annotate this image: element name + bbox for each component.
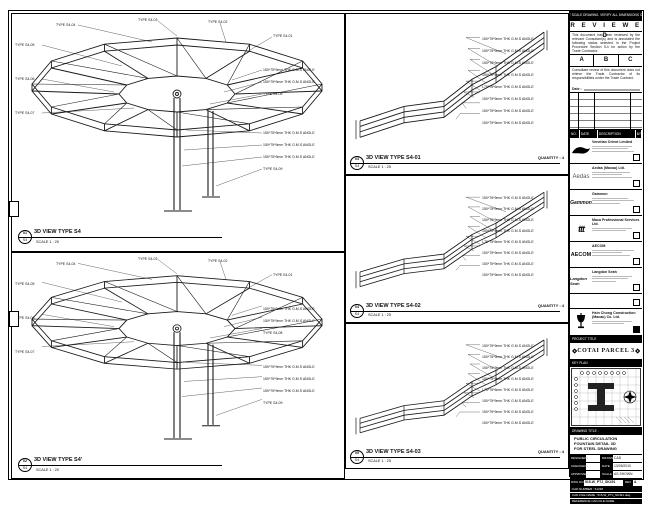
consultant-name: AECOM (592, 244, 642, 248)
member-label: L75*75*6mm THK G.M.S ANGLE (482, 85, 534, 89)
panel-3d-view-type-s4: TYPE S4-05 TYPE S4-04 TYPE S4-03 TYPE S4… (11, 13, 345, 252)
cad-ref-row: REFERENCE CAD FILE NAME (570, 499, 642, 505)
consultant-name: Gammon (592, 192, 642, 196)
panel-3d-view-type-s4-02: 150*75*9mm THK G.M.S ANGLE 150*75*9mm TH… (345, 175, 569, 323)
detail-callout: 01 S4 (18, 230, 32, 244)
view-scale: SCALE 1 : 20 (36, 240, 59, 244)
date-label: Date : (572, 87, 582, 91)
project-name: COTAI PARCEL 3 (577, 348, 635, 354)
field-label: CHECKED (570, 463, 586, 470)
member-label: TYPE S4-09 (263, 167, 282, 171)
address-line (592, 323, 624, 324)
contractor-goblet-logo-icon (570, 309, 592, 335)
member-label: TYPE S4-01 (273, 34, 292, 38)
consultant-name: Maca Professional Services Ltd. (592, 218, 642, 226)
title-underline (364, 457, 560, 458)
member-label: 150*75*9mm THK G.M.S ANGLE (482, 49, 534, 53)
field-label: DESIGNED (570, 455, 586, 462)
address-line (592, 250, 634, 251)
reviewed-title: R E V I E W E D (570, 21, 642, 32)
address-line (592, 198, 628, 199)
address-line (592, 172, 630, 173)
address-line (592, 255, 630, 256)
grid-line (630, 93, 631, 129)
member-label: 150*75*9mm THK G.M.S ANGLE (482, 196, 534, 200)
member-label: 150*75*9mm THK G.M.S ANGLE (263, 377, 315, 381)
member-label: TYPE S4-07 (15, 350, 34, 354)
member-label: TYPE S4-04 (56, 23, 75, 27)
member-label: 150*75*9mm THK G.M.S ANGLE (482, 109, 534, 113)
address-line (592, 228, 632, 229)
address-line (592, 278, 628, 279)
contractor-row: Hsin Chong Construction (Macau) Co. Ltd. (570, 309, 642, 336)
quantity-label: QUANTITY : 4 (538, 303, 564, 308)
member-label: L75*75*6mm THK G.M.S ANGLE (482, 388, 534, 392)
view-title: 3D VIEW TYPE S4-02 (366, 303, 421, 309)
panel-3d-view-type-s4-01: 150*75*9mm THK G.M.S ANGLE 150*75*9mm TH… (345, 13, 569, 175)
revision-table-header: NO. DATE DESCRIPTION BY (570, 130, 642, 138)
quantity-label: QUANTITY : 4 (538, 449, 564, 454)
view-title: 3D VIEW TYPE S4-03 (366, 449, 421, 455)
drawing-title-bar: DRAWING TITLE : (570, 428, 642, 435)
dwg-no-label: DWG NO : (570, 479, 584, 486)
contractor-name: Hsin Chong Construction (Macau) Co. Ltd. (592, 311, 642, 319)
member-label: TYPE S4-03 (138, 257, 157, 261)
reviewed-stamp: R E V I E W E D This document has been r… (570, 21, 642, 93)
view-scale: SCALE 1 : 25 (368, 459, 391, 463)
umbrella-structure-drawing (12, 253, 344, 456)
member-label: 150*75*9mm THK G.M.S ANGLE (482, 121, 534, 125)
address-line (592, 177, 632, 178)
drawing-title-text: PUBLIC CIRCULATION FOUNTAIN DETAIL 3D FO… (570, 435, 642, 455)
date-fill-line[interactable] (584, 85, 640, 91)
project-name-box: COTAI PARCEL 3 (570, 343, 642, 360)
consultant-name: Langdon Seah (592, 270, 642, 274)
consultant-row-empty (570, 294, 642, 309)
field-value: CAD (613, 455, 642, 462)
consultant-checkbox[interactable] (633, 154, 640, 161)
title-underline (32, 237, 222, 238)
address-line (592, 321, 632, 322)
title-underline (32, 465, 222, 466)
address-line (592, 230, 626, 231)
aecom-logo-icon: AECOM (570, 242, 592, 267)
member-label: 150*75*9mm THK G.M.S ANGLE (263, 131, 315, 135)
stamp-paragraph-1: This document has been reviewed by the r… (570, 32, 642, 54)
grid-line (594, 93, 595, 129)
member-label: 150*75*9mm THK G.M.S ANGLE (482, 410, 534, 414)
member-label: 150*75*9mm THK G.M.S ANGLE (482, 377, 534, 381)
detail-callout: 05 S4 (350, 450, 364, 464)
consultant-checkbox[interactable] (633, 284, 640, 291)
field-value: - (586, 463, 601, 470)
callout-sheet: S4 (355, 458, 359, 462)
key-plan-map (570, 367, 642, 428)
grid-line (578, 93, 579, 129)
consultant-name: Aedas (Macau) Ltd. (592, 166, 642, 170)
field-value: - (586, 471, 601, 478)
drawing-sheet: TYPE S4-05 TYPE S4-04 TYPE S4-03 TYPE S4… (8, 10, 644, 480)
member-label: 150*75*9mm THK G.M.S ANGLE (482, 251, 534, 255)
title-underline (364, 311, 560, 312)
dwg-no-value: 515-W_PTJ_SK491 (584, 479, 624, 486)
project-title-bar: PROJECT TITLE (570, 336, 642, 343)
field-label: DATE (601, 463, 613, 470)
member-label: 150*75*9mm THK G.M.S ANGLE (263, 155, 315, 159)
field-label: APPROVED (570, 471, 586, 478)
member-label: 150*75*9mm THK G.M.S ANGLE (482, 229, 534, 233)
dwg-no-row: DWG NO : 515-W_PTJ_SK491 REV A (570, 479, 642, 487)
field-label: DRAWN (601, 455, 613, 462)
umbrella-structure-drawing (12, 14, 344, 229)
member-label: TYPE S4-02 (208, 259, 227, 263)
fields-row-1: DESIGNED - DRAWN CAD (570, 455, 642, 463)
detail-callout: 03 S4 (350, 156, 364, 170)
callout-sheet: S4 (355, 312, 359, 316)
member-label: 150*75*9mm THK G.M.S ANGLE (482, 207, 534, 211)
member-label: TYPE S4-02 (208, 20, 227, 24)
panel-3d-view-type-s4-03: 150*75*9mm THK G.M.S ANGLE 150*75*9mm TH… (345, 323, 569, 469)
member-label: 150*75*9mm THK G.M.S ANGLE (482, 97, 534, 101)
beam-assembly-drawing (346, 324, 566, 444)
field-value: - (586, 455, 601, 462)
member-label: 150*75*9mm THK G.M.S ANGLE (482, 218, 534, 222)
member-label: 150*75*9mm THK G.M.S ANGLE (482, 37, 534, 41)
member-label: TYPE S4-07 (15, 111, 34, 115)
member-label: 150*75*9mm THK G.M.S ANGLE (482, 355, 534, 359)
venetian-logo-icon (570, 138, 592, 163)
field-value: AS SHOWN (613, 471, 642, 478)
consultant-row-maca: ttt Maca Professional Services Ltd. (570, 216, 642, 242)
consultant-checkbox[interactable] (633, 180, 640, 187)
beam-assembly-drawing (346, 14, 566, 150)
beam-assembly-drawing (346, 176, 566, 298)
rev-col-date: DATE (580, 130, 598, 138)
gammon-logo-icon: Gammon (570, 190, 592, 215)
member-label: 150*75*9mm THK G.M.S ANGLE (482, 366, 534, 370)
member-label: 150*75*9mm THK G.M.S ANGLE (263, 319, 315, 323)
do-not-scale-note: DO NOT SCALE DRAWING. VERIFY ALL DIMENSI… (570, 11, 642, 21)
address-line (592, 252, 622, 253)
member-label: 150*75*9mm THK G.M.S ANGLE (263, 389, 315, 393)
member-label: 150*75*9mm THK G.M.S ANGLE (482, 61, 534, 65)
member-label: 150*75*9mm THK G.M.S ANGLE (482, 421, 534, 425)
member-label: TYPE S4-06 (15, 77, 34, 81)
callout-sheet: S4 (23, 466, 27, 470)
consultant-row-gammon: Gammon Gammon (570, 190, 642, 216)
sheet-edge-tab (9, 311, 19, 327)
field-label: SCALE (601, 471, 613, 478)
member-label: 150*75*9mm THK G.M.S ANGLE (482, 273, 534, 277)
title-block-column: DO NOT SCALE DRAWING. VERIFY ALL DIMENSI… (569, 11, 642, 477)
address-line (592, 151, 634, 152)
rev-col-desc: DESCRIPTION (598, 130, 636, 138)
member-label: 150*75*9mm THK G.M.S ANGLE (482, 262, 534, 266)
fields-row-2: CHECKED - DATE 13/05/2010 (570, 463, 642, 471)
title-underline (364, 163, 560, 164)
member-label: 150*75*9mm THK G.M.S ANGLE (482, 73, 534, 77)
view-scale: SCALE 1 : 20 (36, 468, 59, 472)
view-title: 3D VIEW TYPE S4 (34, 229, 81, 235)
member-label: TYPE S4-08 (263, 92, 282, 96)
detail-callout: 02 S4 (18, 458, 32, 472)
member-label: L75*75*6mm THK G.M.S ANGLE (482, 240, 534, 244)
rev-col-no: NO. (570, 130, 580, 138)
address-line (592, 148, 628, 149)
view-scale: SCALE 1 : 25 (368, 313, 391, 317)
consultant-row-langdon-seah: Langdon Seah Langdon Seah (570, 268, 642, 294)
consultant-checkbox[interactable] (633, 206, 640, 213)
rev-label: REV (624, 479, 633, 486)
quantity-label: QUANTITY : 4 (538, 155, 564, 160)
address-line (592, 200, 634, 201)
member-label: TYPE S4-09 (263, 401, 282, 405)
callout-sheet: S4 (355, 164, 359, 168)
ttt-logo-icon: ttt (570, 216, 592, 241)
langdon-seah-logo-icon: Langdon Seah (570, 268, 592, 293)
member-label: TYPE S4-01 (273, 273, 292, 277)
detail-callout: 04 S4 (350, 304, 364, 318)
consultant-checkbox[interactable] (633, 299, 640, 306)
status-option-c[interactable]: C (619, 55, 642, 66)
stamp-paragraph-2: Consultant review of this document does … (570, 67, 642, 82)
consultant-checkbox[interactable] (633, 258, 640, 265)
status-option-row: A B C (570, 54, 642, 67)
member-label: TYPE S4-03 (138, 18, 157, 22)
panel-3d-view-type-s4-prime: TYPE S4-05 TYPE S4-04 TYPE S4-03 TYPE S4… (11, 252, 345, 479)
consultant-row-venetian: Venetian Orient Limited (570, 138, 642, 164)
member-label: 150*75*9mm THK G.M.S ANGLE (263, 143, 315, 147)
revision-table (570, 93, 642, 130)
callout-sheet: S4 (23, 238, 27, 242)
member-label: 150*75*9mm THK G.M.S ANGLE (263, 307, 315, 311)
consultant-row-aecom: AECOM AECOM (570, 242, 642, 268)
member-label: TYPE S4-05 (15, 43, 34, 47)
sheet-edge-tab (9, 201, 19, 217)
contractor-marker (633, 326, 640, 333)
view-title: 3D VIEW TYPE S4' (34, 457, 82, 463)
consultant-checkbox[interactable] (633, 232, 640, 239)
aedas-logo-icon: Aedas (570, 164, 592, 189)
rev-col-by: BY (636, 130, 642, 138)
ornament-icon (635, 347, 640, 355)
stamp-date-row: Date : (570, 82, 642, 92)
consultant-row-aedas: Aedas Aedas (Macau) Ltd. (570, 164, 642, 190)
member-label: TYPE S4-08 (263, 331, 282, 335)
consultant-name: Venetian Orient Limited (592, 140, 642, 144)
field-value: 13/05/2010 (613, 463, 642, 470)
member-label: TYPE S4-05 (15, 282, 34, 286)
member-label: 150*75*9mm THK G.M.S ANGLE (482, 344, 534, 348)
status-option-a[interactable]: A (570, 55, 594, 66)
address-line (592, 281, 616, 282)
fields-row-3: APPROVED - SCALE AS SHOWN (570, 471, 642, 479)
member-label: 150*75*9mm THK G.M.S ANGLE (263, 80, 315, 84)
view-title: 3D VIEW TYPE S4-01 (366, 155, 421, 161)
address-line (592, 174, 622, 175)
address-line (592, 276, 632, 277)
member-label: 150*75*9mm THK G.M.S ANGLE (263, 365, 315, 369)
member-label: 150*75*9mm THK G.M.S ANGLE (263, 68, 315, 72)
address-line (592, 146, 632, 147)
drawing-title-line: FOR STEEL DRAWING (574, 446, 642, 451)
member-label: 150*75*9mm THK G.M.S ANGLE (482, 399, 534, 403)
view-scale: SCALE 1 : 25 (368, 165, 391, 169)
key-plan-bar: KEY PLAN (570, 360, 642, 367)
address-line (592, 203, 620, 204)
rev-value: A (633, 479, 642, 486)
member-label: TYPE S4-04 (56, 262, 75, 266)
status-option-b[interactable]: B (594, 55, 618, 66)
